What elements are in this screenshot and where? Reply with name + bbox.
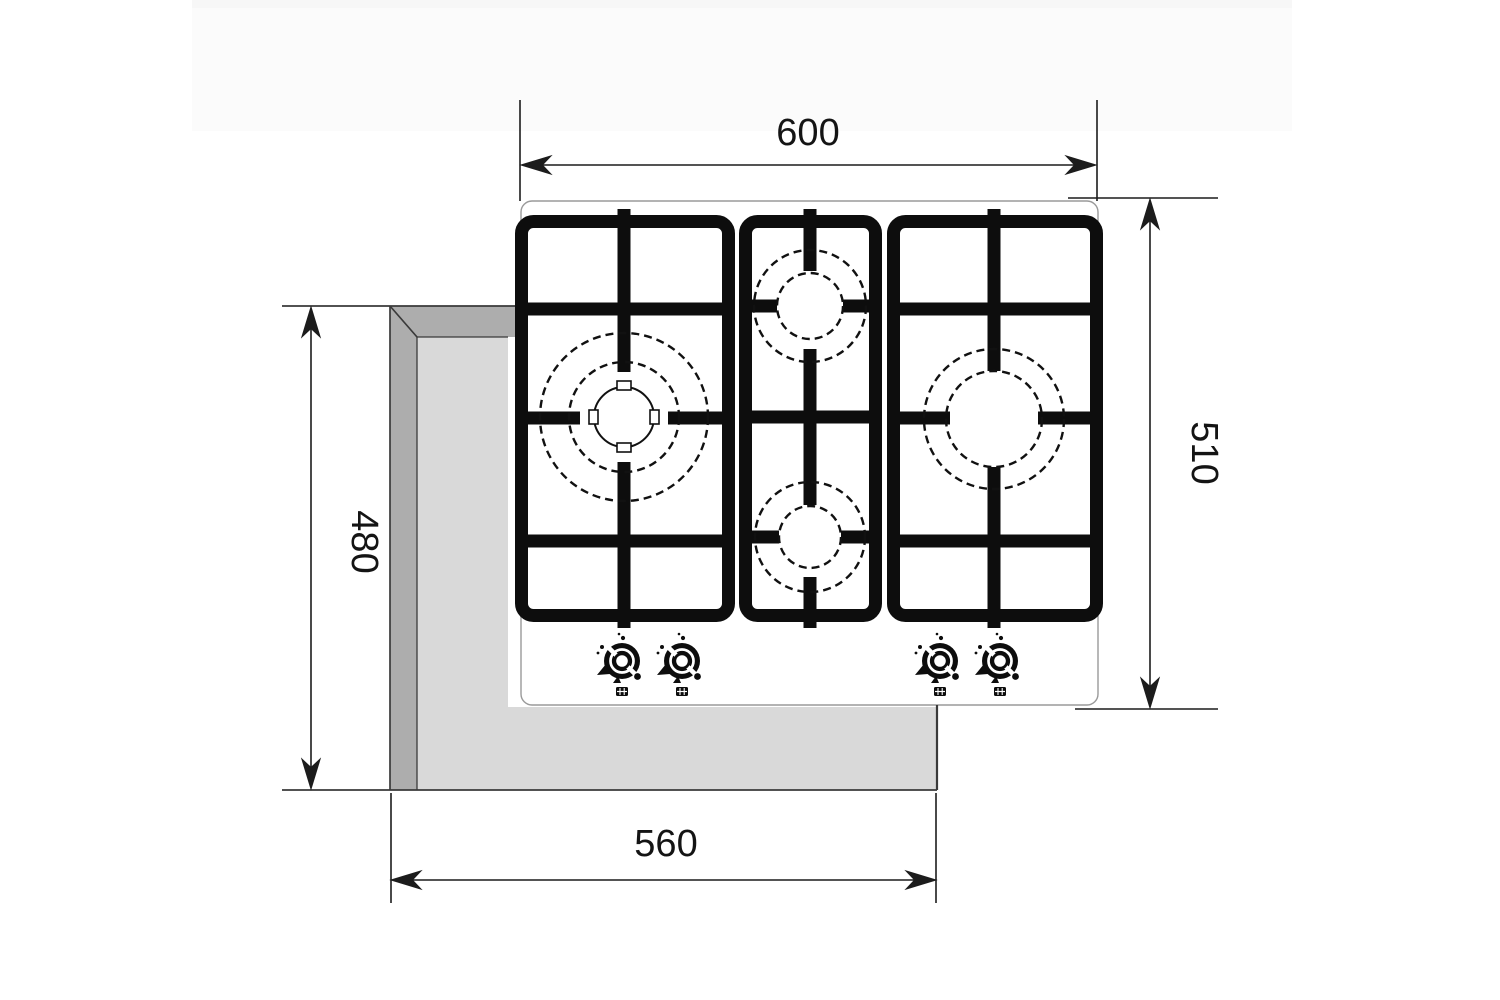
knob-mark-top-dot <box>939 636 943 640</box>
dimension-label-510: 510 <box>1183 421 1225 484</box>
knob-mark-top-dot <box>621 636 625 640</box>
knob-mark-left-dot <box>600 645 604 649</box>
dimension-label-480: 480 <box>343 510 385 573</box>
knob-mark-top-dot <box>999 636 1003 640</box>
dimension-left-480 <box>303 308 320 788</box>
knob-burner-position-icon <box>994 687 1006 696</box>
knob-burner-position-icon <box>676 687 688 696</box>
cutout-dark-left-band <box>390 306 417 790</box>
dimension-label-560: 560 <box>634 823 697 865</box>
knob-burner-position-icon <box>934 687 946 696</box>
knob-burner-position-icon <box>616 687 628 696</box>
knob-mark-left-dot <box>660 645 664 649</box>
diagram-canvas: 600 510 480 560 <box>0 0 1500 1000</box>
cutout-light-bottom <box>417 707 937 790</box>
knob-mark-left-dot <box>918 645 922 649</box>
knob-mark-left-dot <box>978 645 982 649</box>
dimension-label-600: 600 <box>776 112 839 154</box>
knob-mark-top-dot <box>681 636 685 640</box>
page-background-band <box>192 0 1292 131</box>
cutout-dark-top-band <box>390 306 516 337</box>
hob-installation-diagram: 600 510 480 560 <box>0 0 1500 1000</box>
